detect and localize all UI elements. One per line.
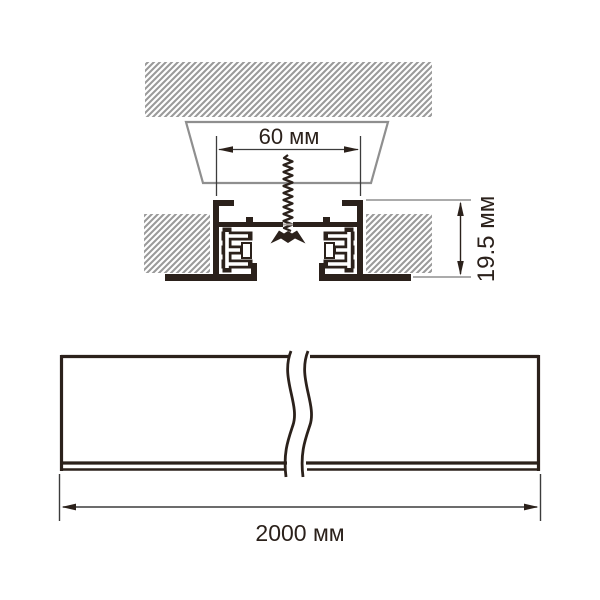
track-profile-dimension-diagram: 60 мм 19.5 мм [0,0,600,600]
bottom-flange-left [165,274,257,281]
side-wall-right [357,200,363,275]
shelf-nub-right [323,217,330,222]
length-arrow-right-icon [524,504,539,511]
break-line-left [285,351,294,477]
bottom-flange-right [319,274,411,281]
side-wall-left [213,200,219,275]
width-arrow-left-icon [218,146,233,153]
contact-pocket [242,243,251,258]
break-line-right [302,351,311,477]
inner-shelf-right [293,222,357,227]
height-arrow-bottom-icon [457,261,464,276]
ceiling-slab-hatch-right [366,214,432,273]
conductor-housing-right [325,232,350,268]
length-dimension [60,474,541,521]
screw-head [271,231,306,244]
width-dimension-label: 60 мм [259,124,320,149]
inner-shelf-left [219,222,283,227]
height-arrow-top-icon [457,202,464,217]
height-dimension-label: 19.5 мм [473,196,500,282]
mounting-screw [271,155,306,244]
length-dimension-label: 2000 мм [255,520,344,546]
conductor-housing-left [226,232,251,268]
screw-thread [284,155,293,231]
shelf-nub-left [246,217,253,222]
width-arrow-right-icon [344,146,359,153]
length-arrow-left-icon [62,504,77,511]
ceiling-slab-hatch-left [144,214,210,273]
track-side-view [61,351,539,477]
ceiling-slab-hatch-top [145,62,432,117]
